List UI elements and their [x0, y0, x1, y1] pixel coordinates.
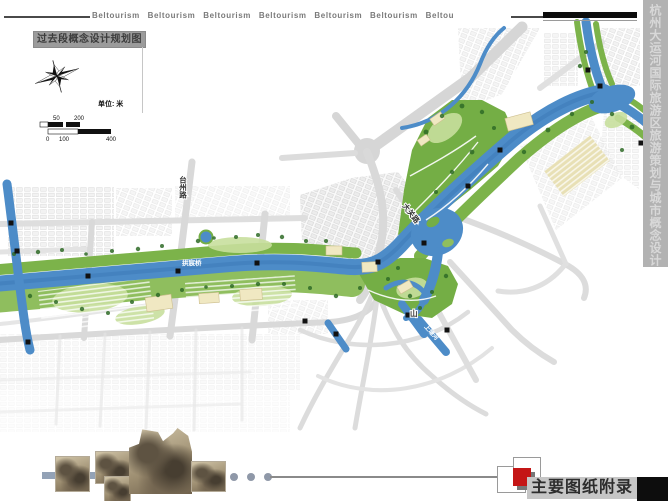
road-label-shan: 山: [410, 308, 418, 318]
scale-unit-label: 单位: 米: [98, 99, 124, 108]
plan-board-page: 台州路 大关路 山 拱宸桥 上塘河 单位: 米 50: [0, 0, 668, 501]
project-title-sidebar: 杭州大运河国际旅游区旅游策划与城市概念设计: [643, 0, 668, 267]
rail-connector-line: [270, 476, 498, 478]
scale-bar: 单位: 米 50 200 0 100 400: [40, 99, 124, 143]
caption-black-block: [637, 477, 668, 501]
master-plan-map: 台州路 大关路 山 拱宸桥 上塘河 单位: 米 50: [0, 0, 668, 501]
sheet-title-box: 过去段概念设计规划图: [33, 31, 146, 48]
scale-tick-200: 200: [74, 116, 85, 122]
brand-line: Beltourism Beltourism Beltourism Beltour…: [92, 11, 516, 20]
scale-tick-400: 400: [106, 137, 117, 143]
canal-bridge-label: 拱宸桥: [182, 258, 202, 267]
title-leader-line: [142, 47, 143, 113]
scale-tick-0: 0: [46, 137, 50, 143]
reference-sketch-thumbnail: [104, 476, 131, 501]
header-black-bar: [543, 12, 637, 18]
rail-dot: [230, 473, 238, 481]
header-rule-right: [511, 16, 543, 18]
project-title-vertical: 杭州大运河国际旅游区旅游策划与城市概念设计: [647, 4, 664, 267]
header-thin-rule: [543, 20, 637, 21]
scale-tick-50: 50: [53, 116, 60, 122]
reference-sketch-thumbnail: [55, 456, 90, 492]
road-label-taizhou: 台州路: [178, 175, 187, 200]
park-pond: [200, 231, 213, 244]
compass-rose: [31, 54, 84, 98]
reference-sketch-thumbnail: [191, 461, 226, 492]
header-rule-left: [4, 16, 90, 18]
appendix-caption: 主要图纸附录: [527, 477, 641, 499]
scale-tick-100: 100: [59, 137, 70, 143]
rail-dot: [247, 473, 255, 481]
